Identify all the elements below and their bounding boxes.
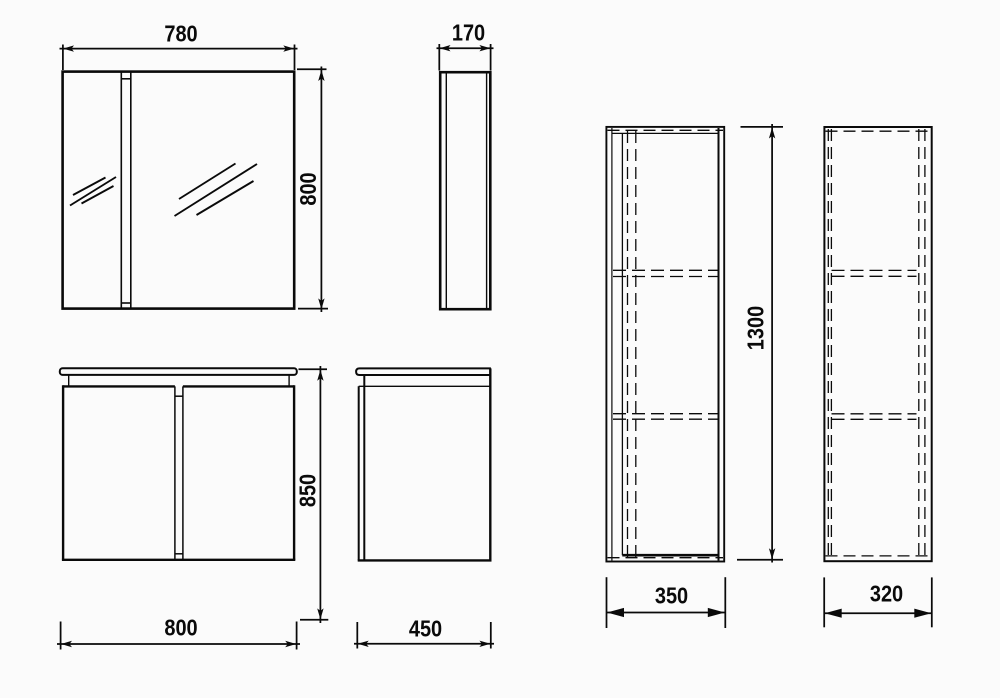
svg-text:350: 350 <box>655 582 688 609</box>
svg-text:170: 170 <box>452 19 485 46</box>
svg-text:850: 850 <box>294 474 321 507</box>
svg-text:450: 450 <box>409 615 442 642</box>
svg-text:800: 800 <box>164 614 197 641</box>
svg-text:780: 780 <box>164 20 197 47</box>
svg-text:1300: 1300 <box>742 306 769 350</box>
svg-text:800: 800 <box>295 172 322 205</box>
svg-text:320: 320 <box>870 580 903 607</box>
